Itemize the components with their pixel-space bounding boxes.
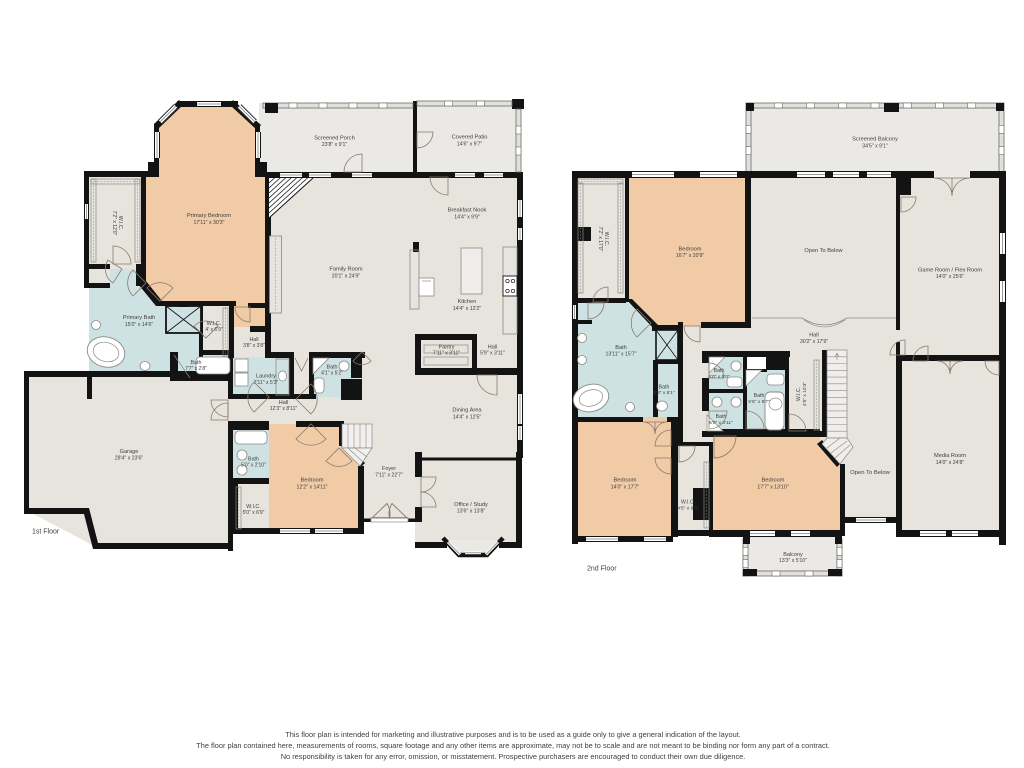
svg-text:5'5" x 8'7": 5'5" x 8'7" (748, 399, 770, 405)
svg-text:Bedroom: Bedroom (301, 478, 324, 484)
svg-text:Screened Porch: Screened Porch (314, 135, 354, 141)
svg-text:4' x 6'9": 4' x 6'9" (205, 327, 223, 333)
svg-text:7'2" x 12'0": 7'2" x 12'0" (111, 211, 117, 236)
svg-text:34'5" x 9'1": 34'5" x 9'1" (862, 143, 888, 149)
svg-text:Office / Study: Office / Study (454, 502, 488, 508)
svg-text:Bedroom: Bedroom (679, 246, 702, 252)
svg-text:1st Floor: 1st Floor (32, 529, 60, 536)
svg-text:Pantry: Pantry (439, 344, 455, 350)
svg-text:5'0" x 6'9": 5'0" x 6'9" (243, 510, 265, 516)
svg-text:Bedroom: Bedroom (762, 478, 785, 484)
svg-text:Balcony: Balcony (783, 552, 803, 558)
svg-text:Open To Below: Open To Below (850, 470, 891, 476)
svg-text:5'9" x 3'11": 5'9" x 3'11" (480, 351, 505, 357)
svg-text:14'4" x 12'5": 14'4" x 12'5" (453, 414, 482, 420)
svg-text:16'7" x 20'9": 16'7" x 20'9" (676, 253, 705, 259)
svg-text:Hall: Hall (488, 344, 497, 350)
svg-text:4'5" x 9'3": 4'5" x 9'3" (677, 505, 699, 511)
svg-text:Bedroom: Bedroom (614, 478, 637, 484)
svg-text:14'0" x 24'8": 14'0" x 24'8" (936, 460, 965, 466)
svg-text:7'11" x 22'7": 7'11" x 22'7" (375, 472, 403, 478)
svg-text:Laundry: Laundry (256, 374, 276, 380)
svg-text:Screened Balcony: Screened Balcony (852, 137, 898, 143)
svg-text:28'4" x 23'6": 28'4" x 23'6" (115, 456, 144, 462)
svg-text:12'2" x 14'11": 12'2" x 14'11" (297, 484, 328, 490)
svg-text:Open To Below: Open To Below (804, 248, 843, 254)
svg-text:Foyer: Foyer (382, 466, 396, 472)
svg-text:W.I.C.: W.I.C. (796, 387, 802, 401)
svg-text:14'4" x 9'9": 14'4" x 9'9" (454, 214, 480, 220)
svg-text:Bath: Bath (659, 384, 670, 390)
svg-text:7'7" x 2'8": 7'7" x 2'8" (185, 366, 207, 372)
svg-text:This floor plan is intended fo: This floor plan is intended for marketin… (285, 730, 741, 739)
svg-text:W.I.C.: W.I.C. (117, 216, 123, 230)
svg-text:20'1" x 24'9": 20'1" x 24'9" (332, 273, 361, 279)
svg-text:Game Room / Flex Room: Game Room / Flex Room (918, 267, 982, 273)
svg-text:14'0" x 17'7": 14'0" x 17'7" (611, 484, 640, 490)
svg-text:23'8" x 9'1": 23'8" x 9'1" (322, 142, 348, 148)
svg-text:Kitchen: Kitchen (458, 299, 477, 305)
svg-text:13'3" x 5'10": 13'3" x 5'10" (779, 558, 807, 564)
svg-text:13'6" x 13'8": 13'6" x 13'8" (457, 509, 486, 515)
svg-text:Bath: Bath (754, 393, 765, 399)
svg-text:Dining Area: Dining Area (452, 408, 482, 414)
svg-text:Media Room: Media Room (934, 453, 966, 459)
svg-text:14'0" x 25'6": 14'0" x 25'6" (936, 274, 965, 280)
svg-text:7'11" x 5'3": 7'11" x 5'3" (254, 380, 279, 386)
svg-text:7'2" x 17'0": 7'2" x 17'0" (597, 227, 603, 252)
svg-text:15'0" x 14'6": 15'0" x 14'6" (125, 322, 154, 328)
svg-text:No responsibility is taken for: No responsibility is taken for any error… (281, 752, 746, 761)
svg-text:W.I.C.: W.I.C. (681, 500, 695, 506)
svg-text:5'0" x 2'10": 5'0" x 2'10" (241, 462, 266, 468)
svg-text:5'0" x 5'0": 5'0" x 5'0" (708, 374, 730, 380)
svg-text:Hall: Hall (279, 400, 288, 406)
svg-text:30'2" x 17'9": 30'2" x 17'9" (800, 339, 828, 345)
svg-text:7'11" x 3'11": 7'11" x 3'11" (433, 351, 460, 357)
svg-text:13'11" x 15'7": 13'11" x 15'7" (606, 352, 637, 358)
svg-text:14'6" x 9'7": 14'6" x 9'7" (457, 142, 483, 148)
svg-text:4'1" x 5'2": 4'1" x 5'2" (321, 371, 343, 377)
svg-text:17'7" x 13'10": 17'7" x 13'10" (757, 484, 788, 490)
svg-text:Bath: Bath (716, 414, 727, 420)
svg-text:5'0" x 4'11": 5'0" x 4'11" (709, 420, 733, 426)
svg-text:Bath: Bath (714, 368, 725, 374)
svg-text:Primary Bath: Primary Bath (123, 315, 156, 321)
svg-text:14'4" x 12'2": 14'4" x 12'2" (453, 306, 482, 312)
svg-text:12'3" x 8'11": 12'3" x 8'11" (270, 406, 298, 412)
svg-text:W.I.C.: W.I.C. (603, 232, 609, 246)
svg-text:Garage: Garage (120, 449, 139, 455)
svg-text:Covered Patio: Covered Patio (452, 135, 488, 141)
svg-text:The floor plan contained here,: The floor plan contained here, measureme… (196, 741, 830, 750)
svg-text:Primary Bedroom: Primary Bedroom (187, 213, 231, 219)
svg-text:2nd Floor: 2nd Floor (587, 565, 617, 572)
svg-text:5'9" x 6'1": 5'9" x 6'1" (653, 390, 675, 396)
svg-text:Breakfast Nook: Breakfast Nook (448, 208, 487, 214)
svg-text:Family Room: Family Room (329, 267, 363, 273)
svg-text:Bath: Bath (615, 345, 627, 351)
svg-text:3'8" x 3'8": 3'8" x 3'8" (243, 343, 265, 349)
svg-text:4'5" x 10'3": 4'5" x 10'3" (802, 382, 808, 406)
svg-text:17'11" x 30'3": 17'11" x 30'3" (194, 220, 225, 226)
svg-text:Hall: Hall (809, 333, 818, 339)
